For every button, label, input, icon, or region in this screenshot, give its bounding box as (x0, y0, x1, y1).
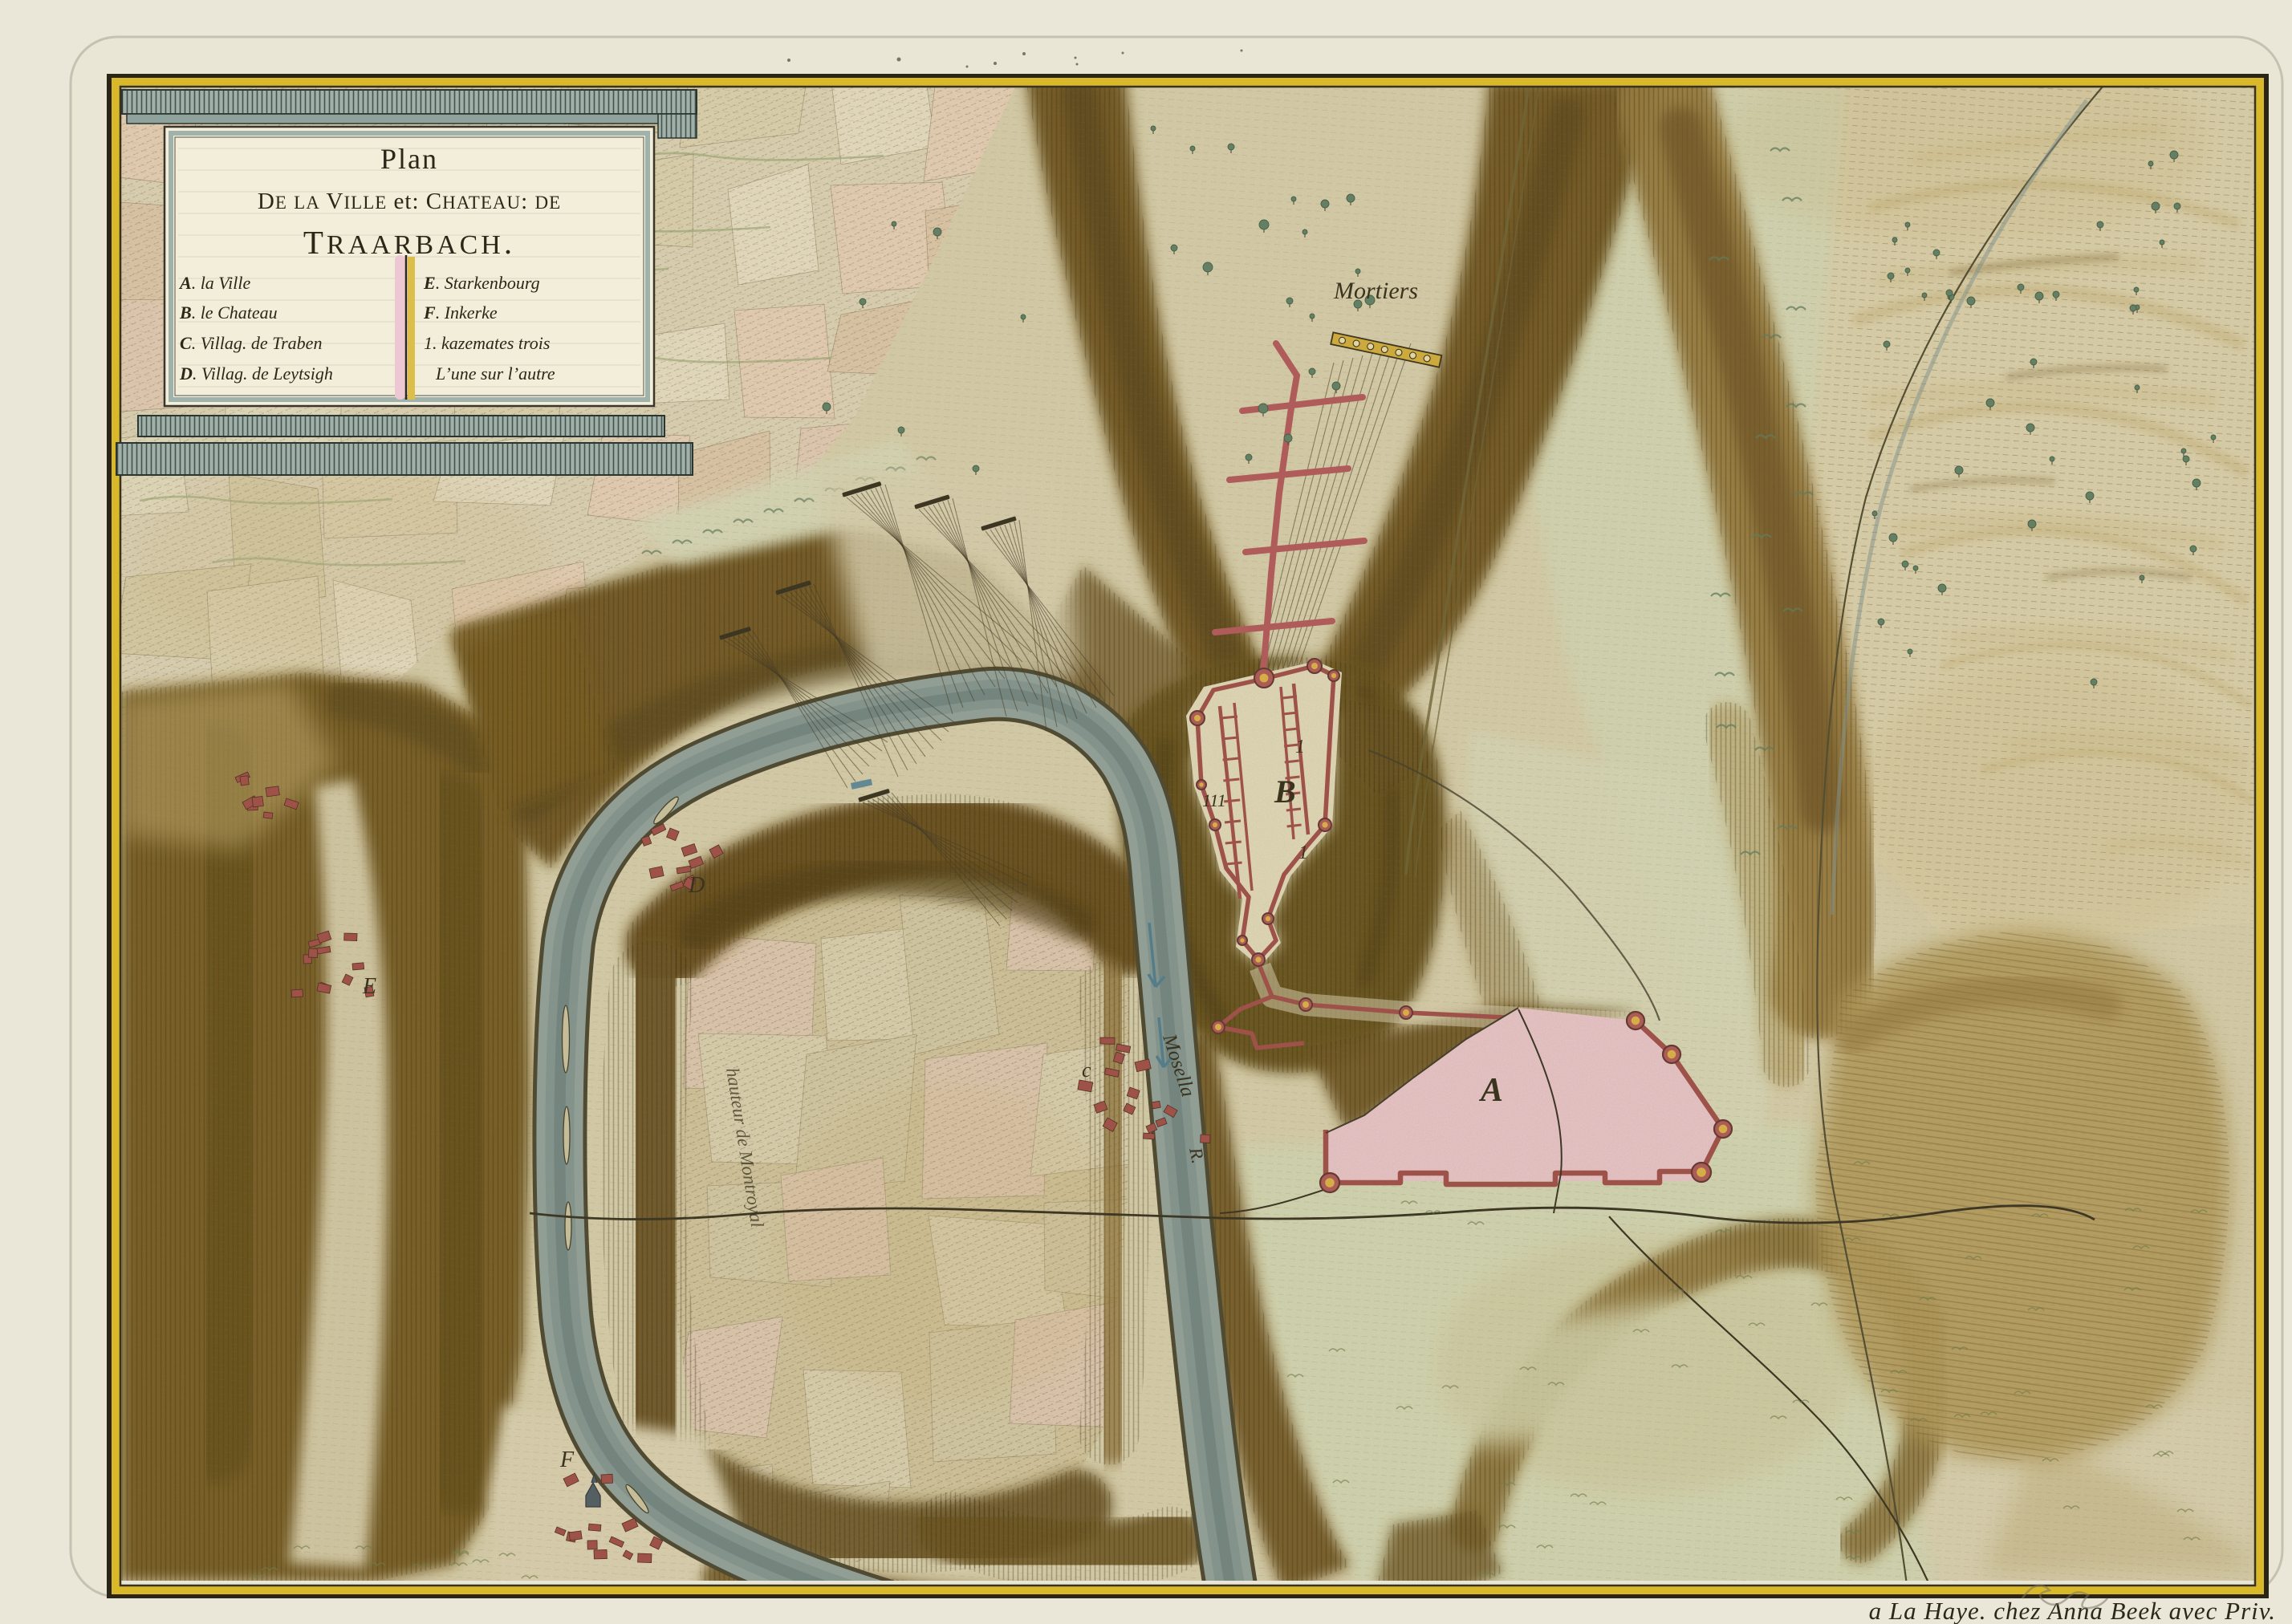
svg-text:B. le Chateau: B. le Chateau (179, 302, 278, 323)
svg-text:C. Villag. de Traben: C. Villag. de Traben (180, 333, 322, 353)
svg-text:E. Starkenbourg: E. Starkenbourg (423, 273, 540, 293)
svg-text:a La Haye. chez Anna Beek avec: a La Haye. chez Anna Beek avec Priv. (1869, 1597, 2276, 1624)
svg-text:Plan: Plan (380, 143, 438, 175)
svg-text:D. Villag. de Leytsigh: D. Villag. de Leytsigh (179, 363, 333, 384)
svg-text:A. la Ville: A. la Ville (178, 273, 250, 293)
svg-text:DE LA VILLE et: CHATEAU: DE: DE LA VILLE et: CHATEAU: DE (258, 189, 561, 214)
svg-text:L’une sur l’autre: L’une sur l’autre (435, 363, 555, 384)
svg-text:F. Inkerke: F. Inkerke (423, 302, 498, 323)
svg-text:1. kazemates trois: 1. kazemates trois (424, 333, 550, 353)
